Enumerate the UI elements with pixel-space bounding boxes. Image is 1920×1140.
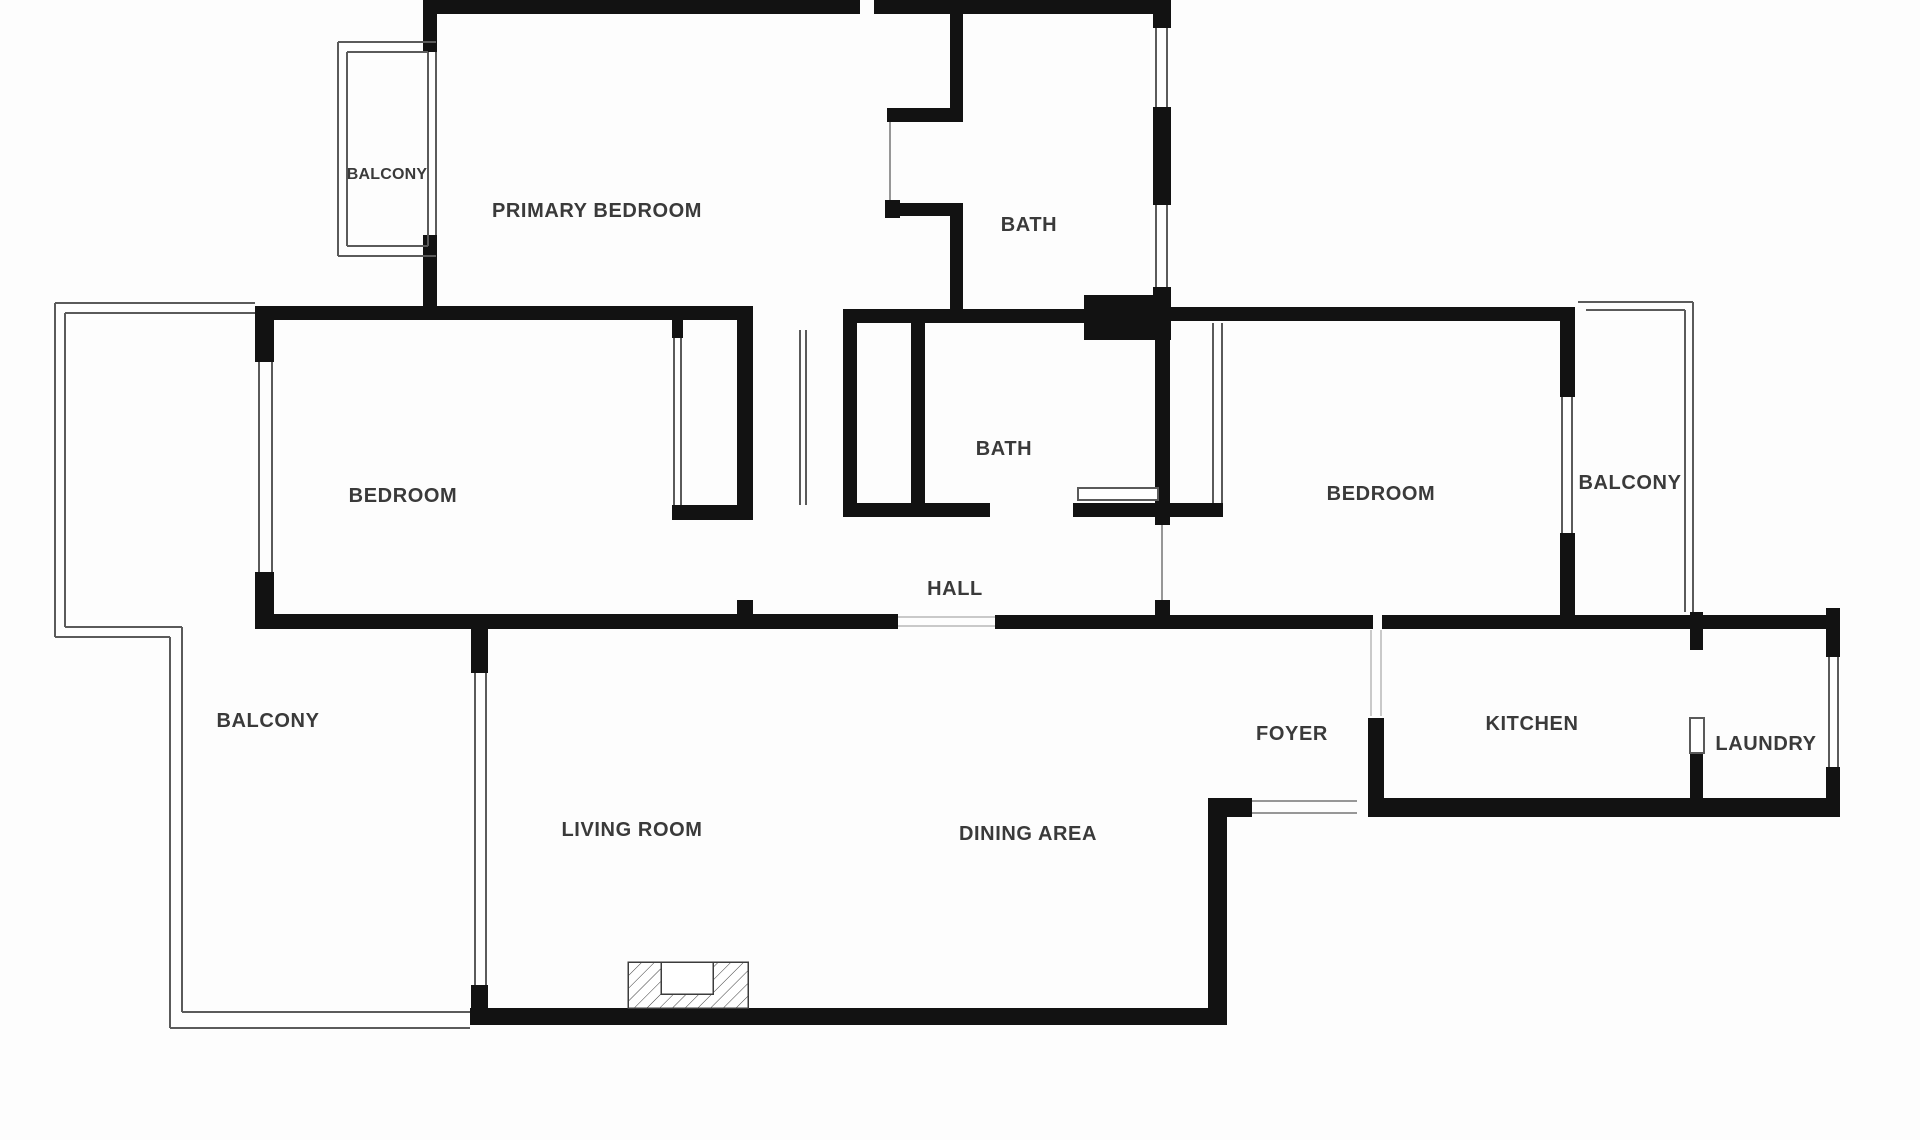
room-label-balcony-left: BALCONY — [216, 710, 319, 732]
room-label-living-room: LIVING ROOM — [561, 819, 702, 841]
room-label-bath-top: BATH — [1001, 214, 1057, 236]
room-label-balcony-top-left: BALCONY — [347, 166, 428, 183]
room-label-bedroom-left: BEDROOM — [349, 485, 458, 507]
kitchen-laundry-passthrough — [1690, 718, 1704, 753]
plan-background — [0, 0, 1920, 1140]
room-label-dining-area: DINING AREA — [959, 823, 1097, 845]
floor-plan: BALCONY PRIMARY BEDROOM BATH BEDROOM BAT… — [0, 0, 1920, 1140]
room-label-primary-bedroom: PRIMARY BEDROOM — [492, 200, 702, 222]
floor-plan-page: BALCONY PRIMARY BEDROOM BATH BEDROOM BAT… — [0, 0, 1920, 1140]
room-label-bedroom-right: BEDROOM — [1327, 483, 1436, 505]
room-label-balcony-right: BALCONY — [1578, 472, 1681, 494]
room-label-laundry: LAUNDRY — [1715, 733, 1816, 755]
room-label-hall: HALL — [927, 578, 983, 600]
bath-middle-pocket-door — [1078, 488, 1158, 500]
fireplace-firebox — [661, 962, 713, 994]
room-label-kitchen: KITCHEN — [1485, 713, 1578, 735]
room-label-foyer: FOYER — [1256, 723, 1328, 745]
fireplace — [628, 962, 748, 1008]
room-label-bath-middle: BATH — [976, 438, 1032, 460]
